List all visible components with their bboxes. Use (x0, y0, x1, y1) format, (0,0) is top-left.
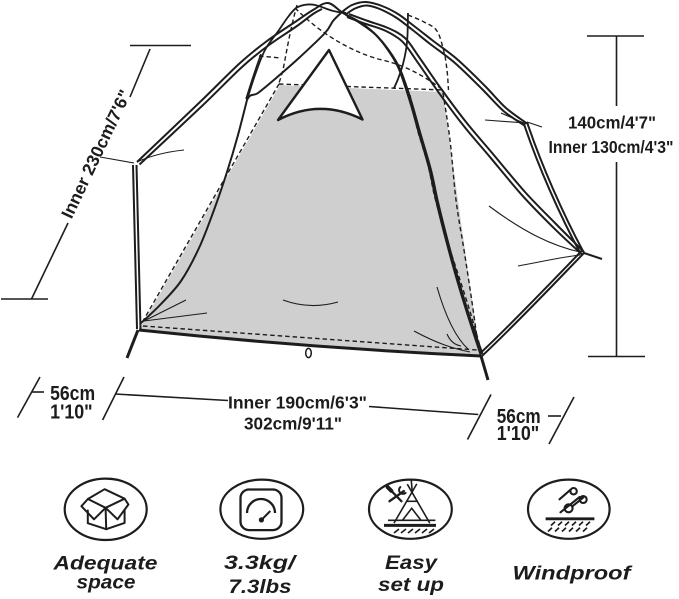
svg-text:space: space (77, 573, 136, 594)
svg-text:140cm/4'7": 140cm/4'7" (568, 113, 656, 133)
svg-text:Inner 190cm/6'3": Inner 190cm/6'3" (228, 393, 367, 413)
svg-text:Inner 130cm/4'3": Inner 130cm/4'3" (549, 137, 674, 157)
svg-text:Inner 230cm/7'6": Inner 230cm/7'6" (57, 86, 135, 221)
svg-text:1'10": 1'10" (50, 401, 93, 424)
svg-text:1'10": 1'10" (497, 422, 540, 445)
svg-text:Easy: Easy (385, 553, 439, 574)
svg-text:7.3lbs: 7.3lbs (229, 577, 292, 598)
svg-text:set up: set up (378, 575, 444, 596)
svg-text:Windproof: Windproof (513, 564, 633, 585)
svg-text:Adequate: Adequate (52, 554, 158, 575)
svg-text:302cm/9'11": 302cm/9'11" (244, 414, 342, 434)
svg-text:3.3kg/: 3.3kg/ (224, 553, 297, 574)
